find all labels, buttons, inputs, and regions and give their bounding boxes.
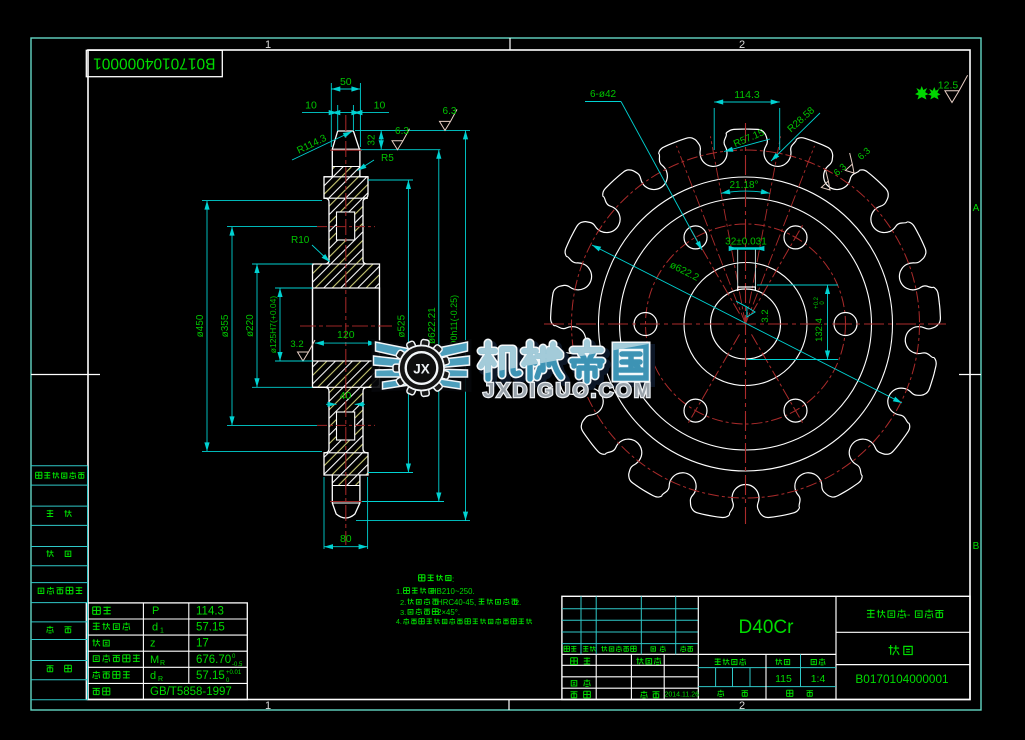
svg-text:z: z [150,638,156,650]
svg-text:M: M [150,654,159,666]
svg-text:80: 80 [340,533,352,545]
svg-text:6-ø42: 6-ø42 [590,89,617,100]
svg-text:676.70: 676.70 [196,654,231,666]
svg-text:1: 1 [265,39,271,51]
svg-text:2.: 2. [515,598,521,607]
svg-text:ø220: ø220 [245,314,256,337]
svg-text:B0170104000001: B0170104000001 [855,672,948,686]
svg-text::HRC40-45,: :HRC40-45, [435,598,476,607]
svg-text:P: P [152,605,159,617]
svg-text:A: A [973,203,980,214]
svg-text:B0170104000001: B0170104000001 [93,55,215,72]
svg-text:115: 115 [775,673,792,685]
svg-text:114.3: 114.3 [734,89,760,101]
svg-text:ø525: ø525 [396,314,407,337]
svg-text:HB210~250.: HB210~250. [431,587,475,596]
svg-text:2: 2 [739,700,745,712]
svg-text:GB/T5858-1997: GB/T5858-1997 [150,686,232,698]
svg-text:R10: R10 [291,235,310,246]
svg-text:6.3: 6.3 [395,126,409,137]
svg-text:2: 2 [739,39,745,51]
svg-text:R5: R5 [381,153,394,164]
svg-text:50: 50 [340,76,352,88]
svg-text:57.15: 57.15 [196,670,225,682]
svg-text:32±0.031: 32±0.031 [725,237,767,248]
svg-text:d: d [150,670,156,682]
svg-text:120: 120 [337,329,355,341]
svg-text:1:4: 1:4 [811,673,826,685]
svg-text:10: 10 [374,100,386,112]
svg-text:40: 40 [340,390,352,402]
svg-text:ø450: ø450 [195,314,206,337]
svg-text:3.2: 3.2 [760,309,771,322]
svg-text:-0.5: -0.5 [232,662,243,668]
svg-text:10: 10 [305,100,317,112]
svg-text:R: R [158,676,163,683]
svg-text:JXDIGUO.COM: JXDIGUO.COM [483,379,653,402]
svg-text:57.15: 57.15 [196,622,225,634]
svg-text:1: 1 [160,628,164,635]
svg-text:ø622.21: ø622.21 [427,307,438,344]
svg-text:--: -- [904,610,911,621]
svg-text:2014.11.26: 2014.11.26 [665,692,700,699]
svg-text:3.: 3. [400,608,406,617]
svg-text:R: R [160,660,165,667]
svg-text:ø355: ø355 [220,314,231,337]
svg-text:21.18°: 21.18° [729,180,758,191]
svg-text:ø125H7(+0.04): ø125H7(+0.04) [268,296,278,354]
svg-text:JX: JX [413,362,430,377]
svg-text:32: 32 [367,134,378,146]
svg-text:d: d [152,622,158,634]
svg-text:D40Cr: D40Cr [739,617,795,638]
svg-text:4.: 4. [396,619,402,626]
svg-text:B: B [973,541,980,552]
svg-text:114.3: 114.3 [196,606,224,618]
svg-text:12.5: 12.5 [938,80,959,92]
svg-text:132.4: 132.4 [814,318,825,342]
svg-text:17: 17 [196,638,209,650]
svg-text:+0.01: +0.01 [226,670,242,676]
svg-text:2.: 2. [400,598,406,607]
svg-text:1: 1 [265,700,271,712]
svg-text::: : [452,575,454,584]
svg-text::2×45°.: :2×45°. [435,608,460,617]
svg-text:3.2: 3.2 [290,339,303,350]
svg-text:1.: 1. [396,587,402,596]
svg-text:6.3: 6.3 [443,106,457,117]
